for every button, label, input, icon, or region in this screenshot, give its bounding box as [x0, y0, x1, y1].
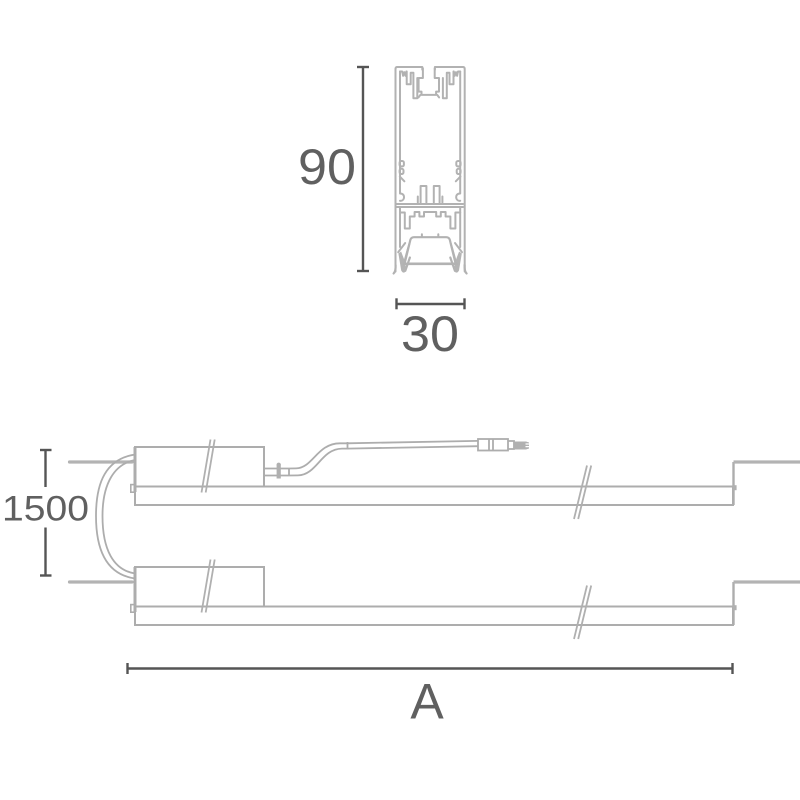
svg-text:A: A [410, 674, 444, 730]
svg-text:30: 30 [401, 306, 459, 362]
svg-text:1500: 1500 [2, 489, 89, 528]
svg-text:90: 90 [298, 139, 356, 195]
